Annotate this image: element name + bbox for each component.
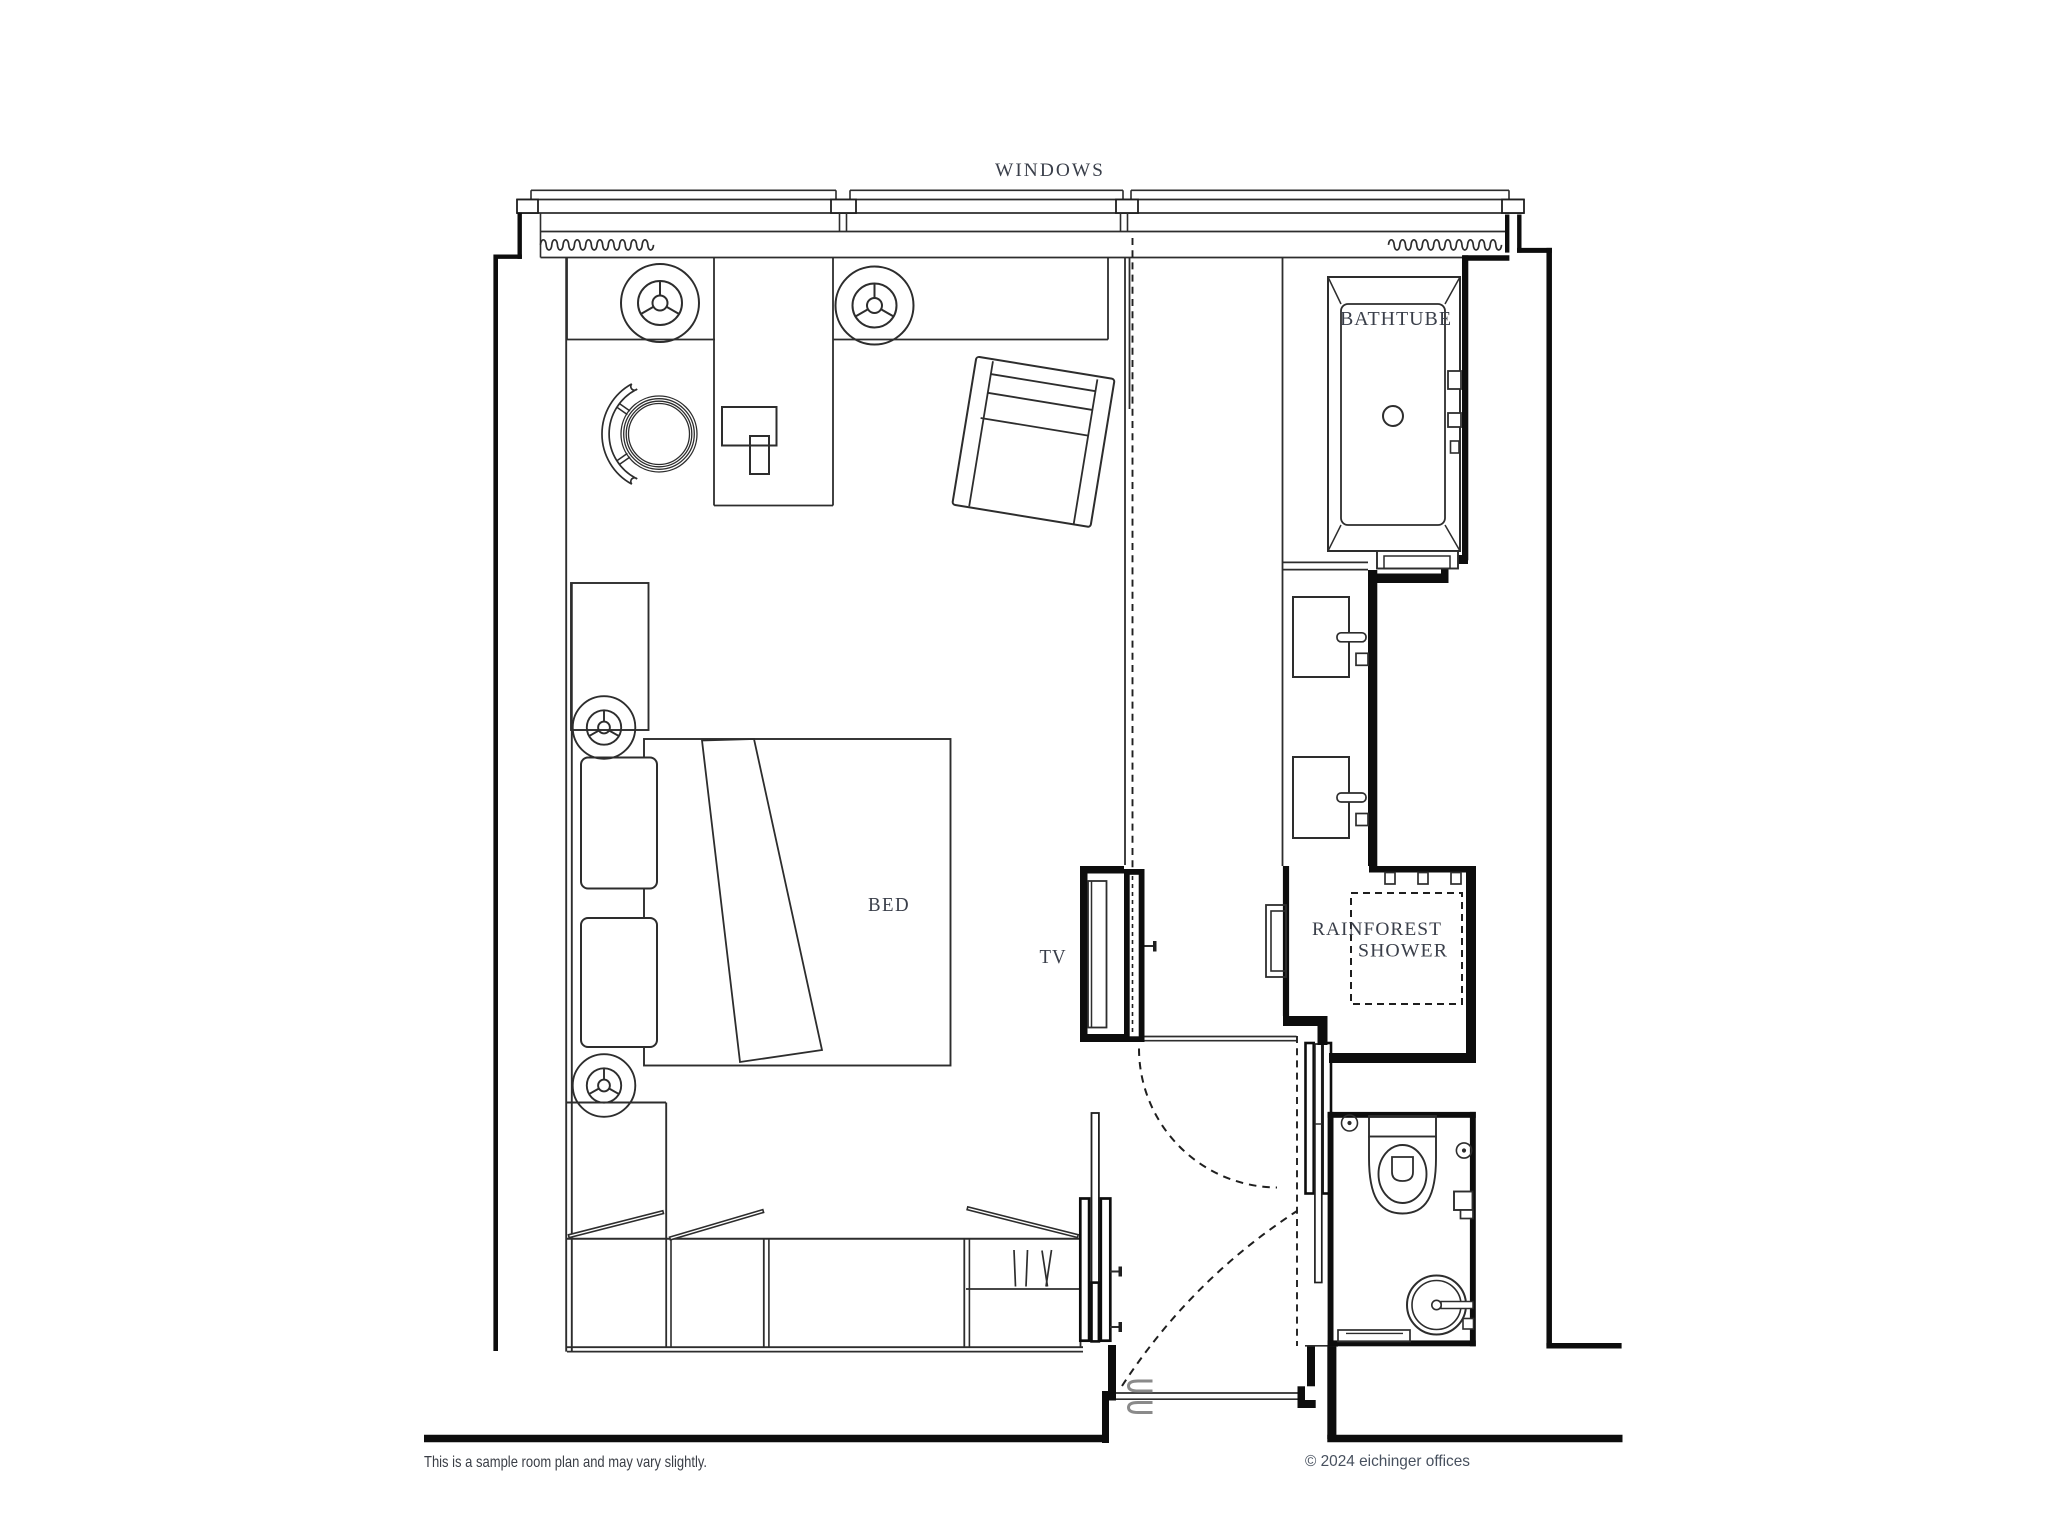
svg-text:BATHTUBE: BATHTUBE (1340, 308, 1452, 330)
svg-text:This is a sample room plan and: This is a sample room plan and may vary … (424, 1454, 707, 1471)
svg-text:WINDOWS: WINDOWS (995, 160, 1105, 181)
svg-text:RAINFOREST: RAINFOREST (1312, 919, 1442, 940)
svg-text:© 2024 eichinger offices: © 2024 eichinger offices (1305, 1453, 1470, 1470)
svg-text:SHOWER: SHOWER (1358, 941, 1448, 962)
svg-text:TV: TV (1040, 946, 1067, 968)
svg-text:BED: BED (868, 894, 910, 916)
